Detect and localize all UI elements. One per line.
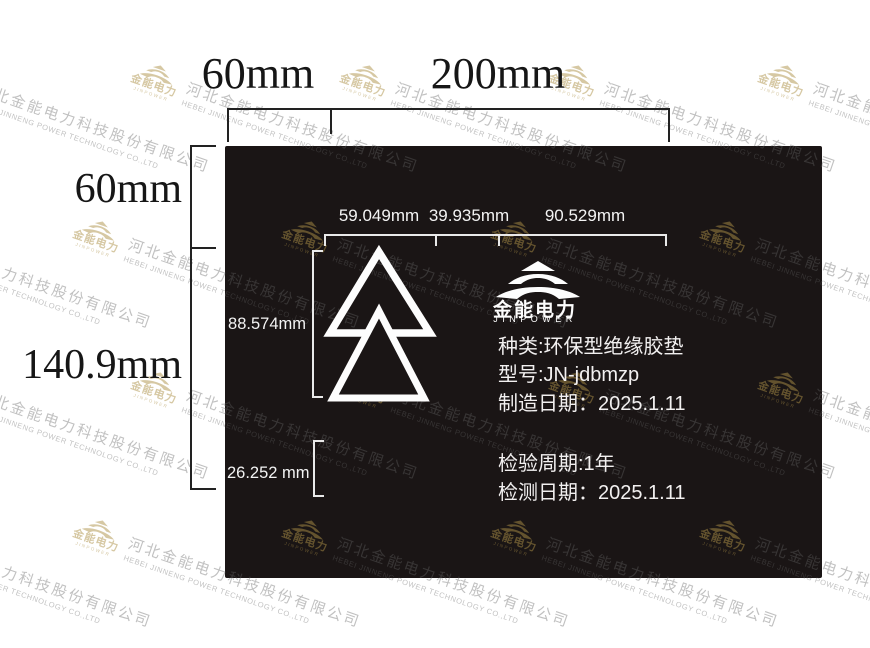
watermark-company-cn: 河北金能电力科技股份有限公司 bbox=[0, 80, 212, 176]
spec-model: 型号:JN-jdbmzp bbox=[498, 358, 639, 387]
inner-dim-59mm-label: 59.049mm bbox=[339, 206, 419, 226]
brand-name-en: JINPOWER bbox=[490, 314, 580, 324]
spec-inspection-cycle: 检验周期:1年 bbox=[498, 447, 615, 476]
watermark-brand-cn: 金能电力 bbox=[71, 527, 120, 554]
watermark-company-cn: 河北金能电力科技股份有限公司 bbox=[0, 236, 154, 332]
dim-top-bracket-right-tick bbox=[668, 108, 670, 142]
dim-left-bracket-mid-tick bbox=[190, 247, 216, 249]
watermark-brand-en: JINPOWER bbox=[341, 86, 378, 104]
dim-top-bracket-mid-tick bbox=[330, 108, 332, 134]
watermark-brand-cn: 金能电力 bbox=[338, 72, 387, 99]
jinpower-roof-icon bbox=[140, 60, 177, 86]
watermark-company-cn: 河北金能电力科技股份有限公司 bbox=[0, 387, 212, 483]
dim-top-60mm-label: 60mm bbox=[202, 52, 314, 96]
jinpower-roof-icon bbox=[349, 60, 386, 86]
watermark-unit: 金能电力 JINPOWER 河北金能电力科技股份有限公司 HEBEI JINNE… bbox=[0, 214, 156, 343]
label-design-proof: { "panel": { "bg_color": "#1a1515" }, "o… bbox=[0, 0, 870, 648]
inner-top-bracket-tick-3 bbox=[498, 234, 500, 246]
watermark-company-cn: 河北金能电力科技股份有限公司 bbox=[0, 535, 154, 631]
inner-bottom-bracket-bottom-tick bbox=[313, 495, 324, 497]
jinpower-roof-icon bbox=[496, 261, 580, 299]
inner-dim-26mm-label: 26.252 mm bbox=[227, 464, 307, 483]
watermark-company-text: 河北金能电力科技股份有限公司 HEBEI JINNENG POWER TECHN… bbox=[0, 535, 154, 641]
spec-mfg-date: 制造日期：2025.1.11 bbox=[498, 387, 686, 416]
inner-top-bracket-tick-4 bbox=[665, 234, 667, 246]
watermark-brand-en: JINPOWER bbox=[132, 393, 169, 411]
inner-logo-bracket-line bbox=[312, 250, 314, 398]
inner-dim-39mm-label: 39.935mm bbox=[429, 206, 509, 226]
watermark-brand-en: JINPOWER bbox=[132, 86, 169, 104]
watermark-brand-en: JINPOWER bbox=[74, 541, 111, 559]
watermark-company-en: HEBEI JINNENG POWER TECHNOLOGY CO.,LTD bbox=[0, 254, 148, 342]
watermark-brand-cn: 金能电力 bbox=[71, 228, 120, 255]
jinpower-roof-icon bbox=[767, 60, 804, 86]
inner-top-bracket-line bbox=[324, 234, 667, 236]
inner-bottom-bracket-top-tick bbox=[313, 440, 324, 442]
watermark-company-text: 河北金能电力科技股份有限公司 HEBEI JINNENG POWER TECHN… bbox=[0, 387, 212, 493]
watermark-unit: 金能电力 JINPOWER 河北金能电力科技股份有限公司 HEBEI JINNE… bbox=[0, 513, 156, 642]
watermark-brand-en: JINPOWER bbox=[74, 242, 111, 260]
watermark-jinpower-logo: 金能电力 JINPOWER bbox=[129, 58, 182, 104]
double-triangle-icon bbox=[320, 242, 440, 407]
watermark-brand-cn: 金能电力 bbox=[129, 72, 178, 99]
inner-dim-88mm-label: 88.574mm bbox=[226, 315, 306, 334]
dim-top-bracket-line bbox=[227, 108, 670, 110]
dim-left-bracket-bottom-tick bbox=[190, 488, 216, 490]
watermark-company-text: 河北金能电力科技股份有限公司 HEBEI JINNENG POWER TECHN… bbox=[0, 236, 154, 342]
watermark-company-en: HEBEI JINNENG POWER TECHNOLOGY CO.,LTD bbox=[0, 405, 206, 493]
watermark-jinpower-logo: 金能电力 JINPOWER bbox=[71, 214, 124, 260]
dim-left-bracket-line bbox=[190, 145, 192, 490]
watermark-company-en: HEBEI JINNENG POWER TECHNOLOGY CO.,LTD bbox=[0, 553, 148, 641]
jinpower-roof-icon bbox=[82, 216, 119, 242]
dim-top-200mm-label: 200mm bbox=[431, 52, 565, 96]
watermark-jinpower-logo: 金能电力 JINPOWER bbox=[338, 58, 391, 104]
watermark-brand-cn: 金能电力 bbox=[756, 72, 805, 99]
watermark-jinpower-logo: 金能电力 JINPOWER bbox=[71, 513, 124, 559]
inner-bottom-bracket-line bbox=[313, 440, 315, 497]
dim-top-bracket-left-tick bbox=[227, 108, 229, 142]
dim-left-60mm-label: 60mm bbox=[60, 168, 182, 210]
dim-left-bracket-top-tick bbox=[190, 145, 216, 147]
watermark-jinpower-logo: 金能电力 JINPOWER bbox=[756, 58, 809, 104]
spec-type: 种类:环保型绝缘胶垫 bbox=[498, 330, 684, 359]
jinpower-roof-icon bbox=[82, 515, 119, 541]
inner-dim-90mm-label: 90.529mm bbox=[545, 206, 625, 226]
watermark-brand-en: JINPOWER bbox=[759, 86, 796, 104]
spec-test-date: 检测日期：2025.1.11 bbox=[498, 476, 686, 505]
dim-left-140mm-label: 140.9mm bbox=[16, 344, 182, 386]
